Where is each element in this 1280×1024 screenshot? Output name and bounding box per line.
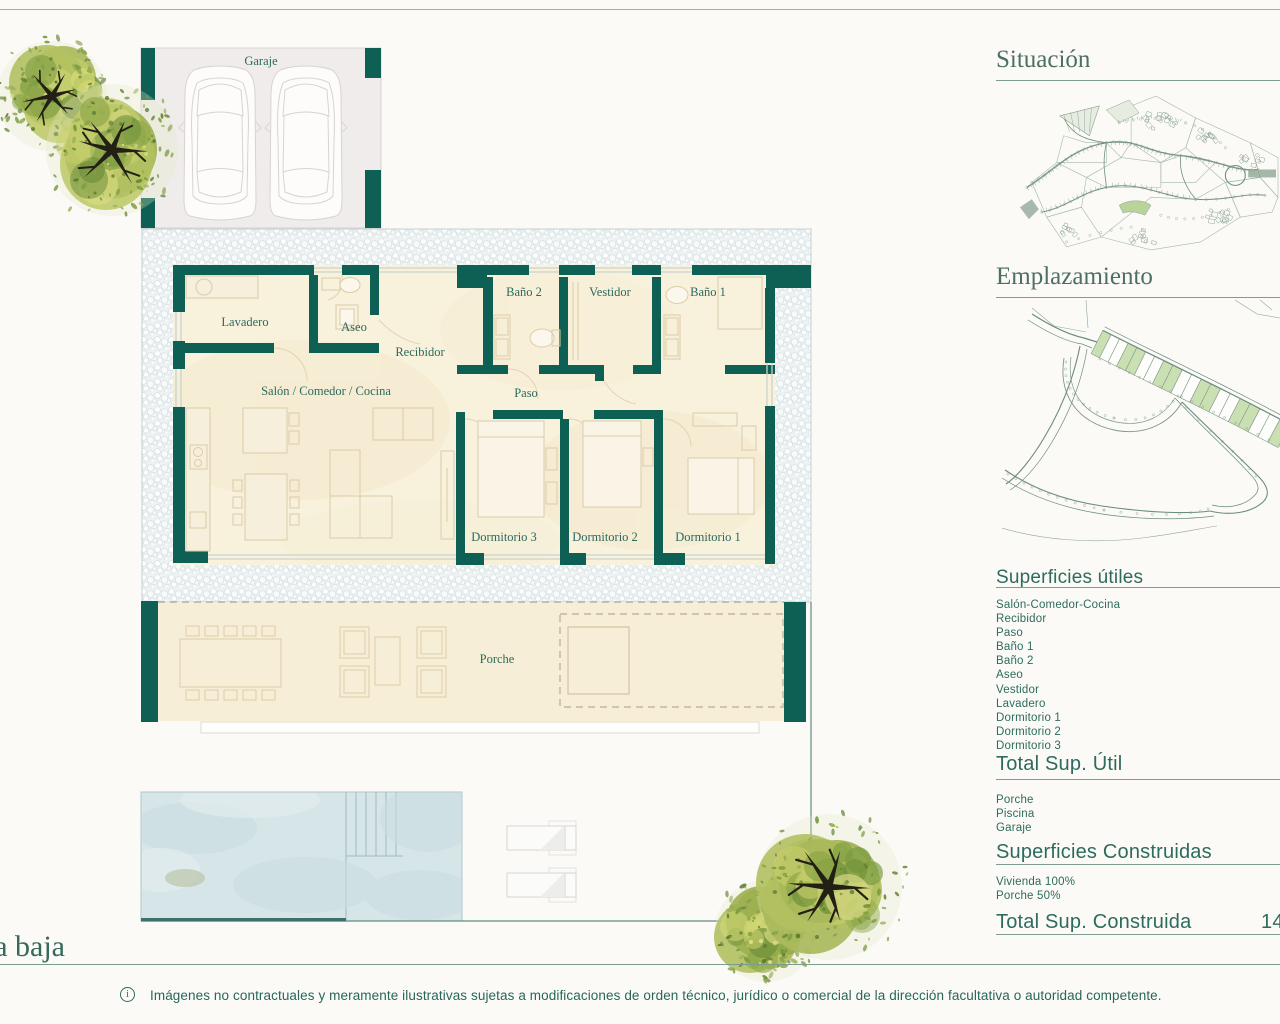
svg-text:Porche: Porche [480,652,515,666]
svg-text:Dormitorio 1: Dormitorio 1 [675,530,741,544]
svg-text:Dormitorio 2: Dormitorio 2 [572,530,638,544]
svg-text:Baño 2: Baño 2 [506,285,542,299]
svg-text:Recibidor: Recibidor [395,345,445,359]
svg-text:Vestidor: Vestidor [589,285,632,299]
svg-text:Paso: Paso [514,386,538,400]
svg-text:Baño 1: Baño 1 [690,285,726,299]
svg-text:Dormitorio 3: Dormitorio 3 [471,530,537,544]
svg-text:Aseo: Aseo [341,320,367,334]
svg-text:Salón / Comedor / Cocina: Salón / Comedor / Cocina [261,384,391,398]
svg-text:Garaje: Garaje [244,54,278,68]
svg-text:Lavadero: Lavadero [221,315,268,329]
